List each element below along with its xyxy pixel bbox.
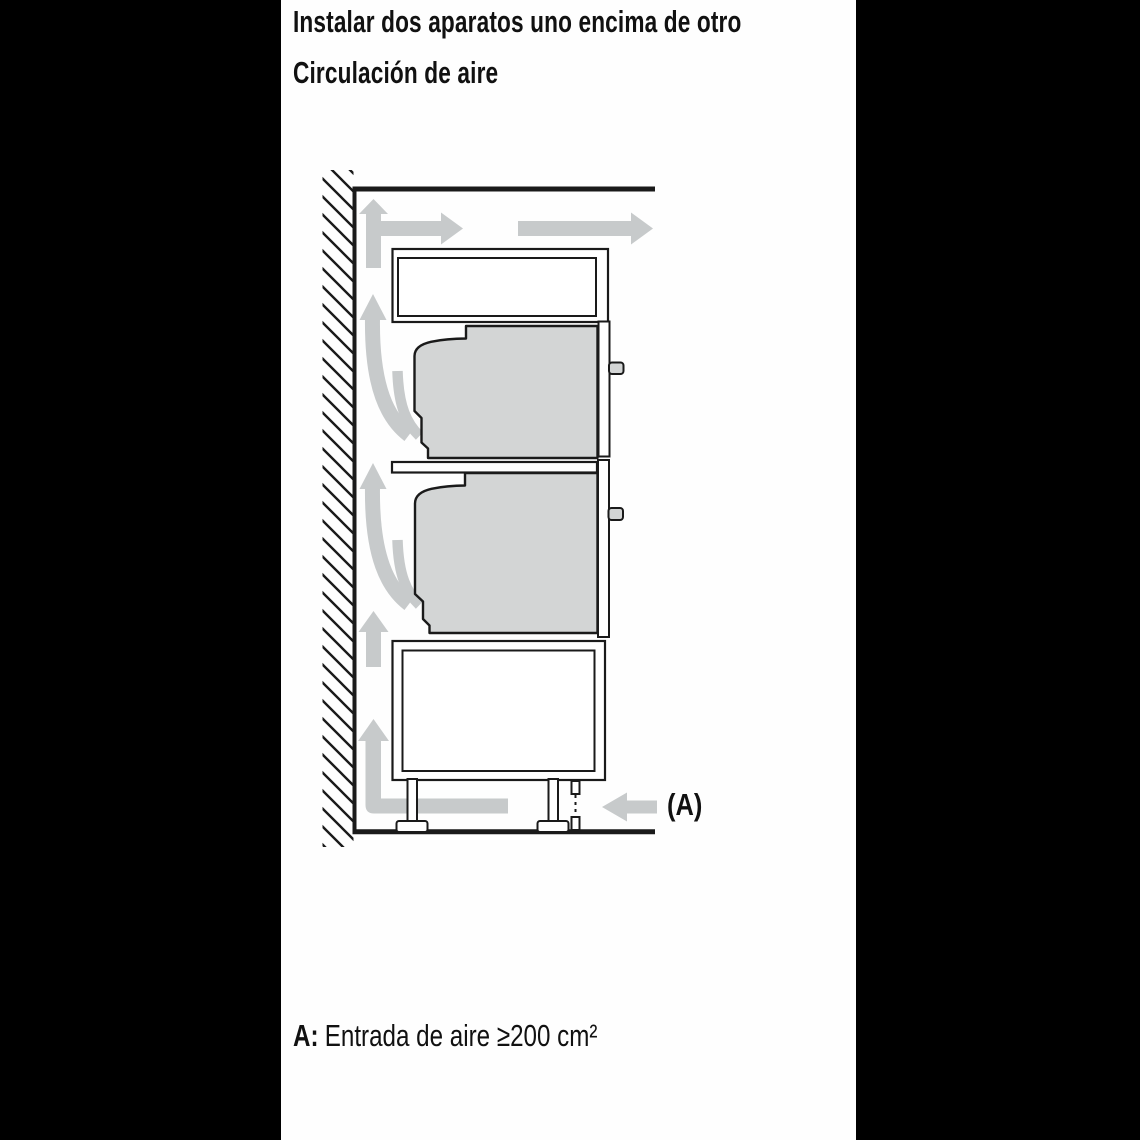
upper-appliance-knob [609, 363, 624, 375]
lower-appliance [415, 460, 623, 637]
footnote-text: Entrada de aire ≥200 cm² [325, 1018, 598, 1053]
footnote-key: A: [293, 1018, 319, 1053]
base-cabinet [393, 641, 606, 780]
airflow-arrow-right-outer [518, 213, 653, 245]
airflow-arrow-right-inner [374, 213, 463, 245]
footnote: A:Entrada de aire ≥200 cm² [293, 1018, 597, 1054]
cabinet-foot-right [538, 821, 569, 832]
cabinet-foot-left [397, 821, 428, 832]
upper-appliance [415, 322, 624, 459]
page: Instalar dos aparatos uno encima de otro… [0, 0, 1140, 1140]
airflow-arrow-up-middle [359, 611, 389, 667]
airflow-arrow-curved-lower [360, 463, 420, 605]
lower-appliance-front [598, 460, 609, 637]
upper-appliance-front [599, 322, 610, 457]
manual-page: Instalar dos aparatos uno encima de otro… [281, 0, 856, 1140]
left-black-bar [0, 0, 281, 1140]
adjustable-foot-axis [572, 781, 580, 830]
air-circulation-diagram [281, 0, 856, 1140]
lower-appliance-knob [609, 508, 624, 520]
cabinet-leg-left [408, 779, 418, 822]
right-black-bar [856, 0, 1140, 1140]
middle-shelf [392, 462, 597, 473]
air-inlet-arrow [602, 793, 657, 822]
wall-hatching [323, 170, 354, 847]
upper-appliance-body [415, 326, 598, 458]
top-compartment [393, 249, 609, 322]
lower-appliance-body [415, 473, 598, 633]
cabinet-leg-right [549, 779, 559, 822]
air-inlet-label: (A) [667, 787, 702, 823]
